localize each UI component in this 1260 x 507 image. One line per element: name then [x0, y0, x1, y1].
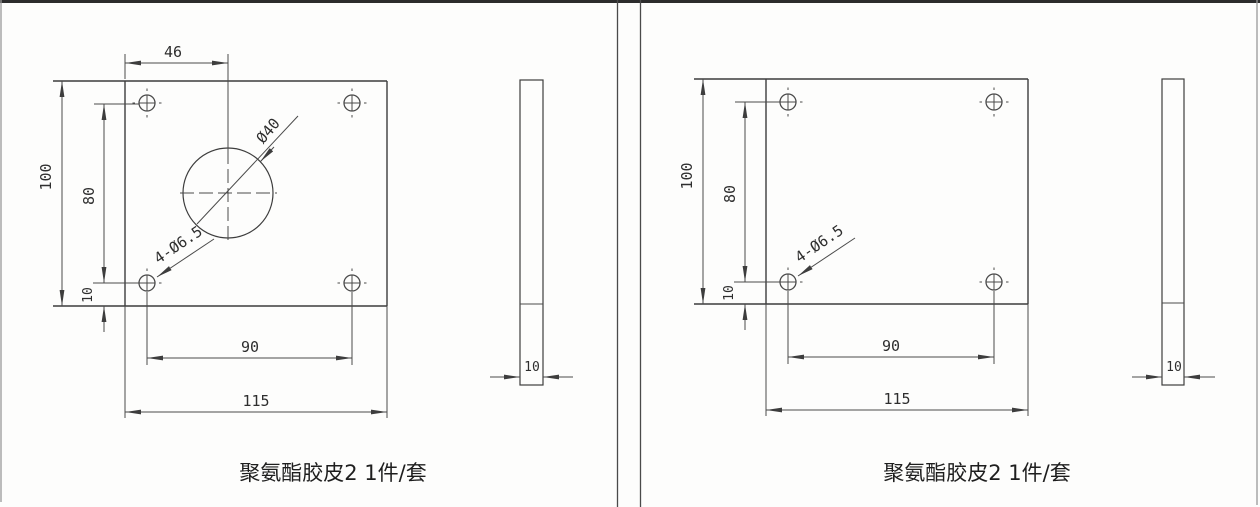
drawing-canvas: Ø40 46 100 80 [0, 0, 1260, 507]
left-caption: 聚氨酯胶皮2 1件/套 [239, 461, 426, 485]
diameter-leader-line [197, 116, 298, 224]
center-hole: Ø40 [180, 115, 298, 242]
dim-edge-offset: 10 [81, 287, 104, 332]
corner-hole-label: 4-Ø6.5 [792, 221, 847, 266]
right-caption: 聚氨酯胶皮2 1件/套 [883, 461, 1070, 485]
hole-marker [980, 88, 1009, 117]
left-drawing: Ø40 46 100 80 [37, 43, 573, 485]
dim-hole-spacing-v-value: 80 [721, 185, 739, 203]
dim-height-value: 100 [678, 162, 696, 189]
side-view-outline [1162, 79, 1184, 385]
dim-hole-spacing-h-value: 90 [241, 338, 259, 356]
scanned-drawing-page: Ø40 46 100 80 [0, 0, 1260, 507]
center-hole-diameter-label: Ø40 [253, 115, 284, 147]
right-front-view: 100 80 10 4-Ø6.5 [678, 79, 1028, 416]
dim-thickness-value: 10 [524, 360, 540, 375]
dim-width: 115 [125, 306, 387, 418]
hole-marker [338, 89, 367, 118]
corner-hole-callout: 4-Ø6.5 [151, 222, 214, 277]
dim-hole-spacing-v-value: 80 [80, 187, 98, 205]
dim-hole-spacing-v: 80 [80, 104, 139, 283]
dim-hole-spacing-h-value: 90 [882, 337, 900, 355]
dim-thickness-value: 10 [1166, 360, 1182, 375]
dim-hole-spacing-h: 90 [788, 291, 994, 364]
corner-hole-label: 4-Ø6.5 [151, 222, 206, 267]
dim-height: 100 [37, 81, 62, 306]
dim-width-value: 115 [883, 390, 910, 408]
dim-width-value: 115 [242, 392, 269, 410]
corner-hole-callout: 4-Ø6.5 [792, 221, 855, 276]
hole-marker [133, 89, 162, 118]
dim-edge-offset-value: 10 [722, 285, 737, 301]
dim-height-value: 100 [37, 163, 55, 190]
side-view-outline [520, 80, 543, 385]
dim-width: 115 [766, 304, 1028, 416]
right-drawing: 100 80 10 4-Ø6.5 [678, 79, 1215, 485]
dim-top-offset-value: 46 [164, 43, 182, 61]
dim-top-offset: 46 [125, 43, 228, 150]
dim-height: 100 [678, 79, 703, 304]
dim-hole-spacing-h: 90 [147, 292, 352, 365]
left-front-view: Ø40 46 100 80 [37, 43, 387, 418]
dim-edge-offset: 10 [722, 285, 745, 330]
left-side-view: 10 [490, 80, 573, 385]
right-side-view: 10 [1132, 79, 1215, 385]
dim-hole-spacing-v: 80 [721, 102, 780, 282]
page-frame [0, 0, 1260, 507]
dim-edge-offset-value: 10 [81, 287, 96, 303]
